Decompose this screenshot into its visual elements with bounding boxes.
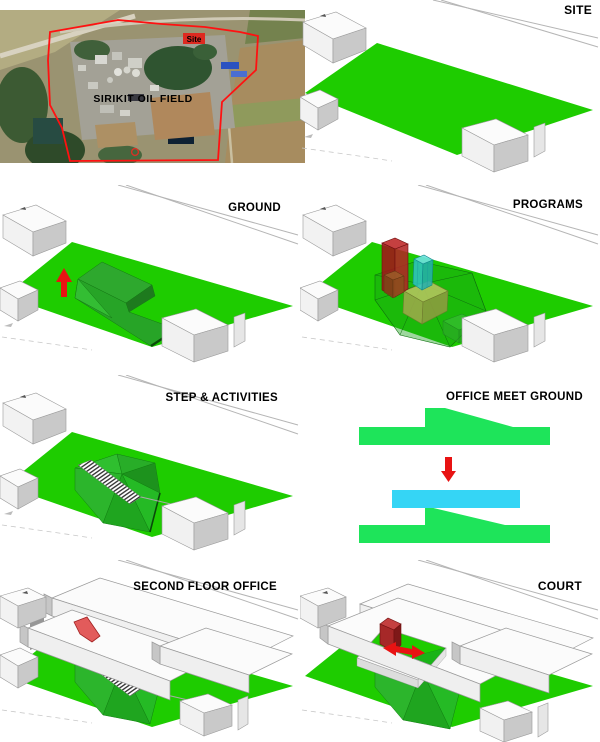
road-dashed-line xyxy=(2,525,92,538)
neighbor-building-nw xyxy=(303,12,366,63)
road-arrow-mark xyxy=(4,511,13,515)
diagram-sheet: Site SIRIKIT OIL FIELD xyxy=(0,0,600,742)
ground-section-top xyxy=(359,408,550,445)
site-marker-label: Site xyxy=(187,35,202,44)
freestanding-wall xyxy=(238,696,248,730)
road-dashed-line xyxy=(2,337,92,350)
panel-label-step-activities: STEP & ACTIVITIES xyxy=(166,392,278,404)
panel-court: COURT xyxy=(300,560,600,742)
panel-label-court: COURT xyxy=(538,579,582,593)
down-arrow-icon xyxy=(441,457,456,482)
panel-step-activities: STEP & ACTIVITIES xyxy=(0,375,300,560)
programs-scene xyxy=(300,185,600,375)
road-lines xyxy=(418,185,598,244)
panel-label-programs: PROGRAMS xyxy=(513,199,583,211)
road-lines xyxy=(118,375,298,434)
road-arrow-mark xyxy=(4,323,13,327)
panel-programs: PROGRAMS xyxy=(300,185,600,375)
south-building xyxy=(480,701,532,742)
neighbor-building-w xyxy=(300,281,338,321)
panel-site: SITE xyxy=(300,0,600,185)
road-dashed-line xyxy=(2,710,92,723)
neighbor-building-w xyxy=(0,469,38,509)
panel-label-site: SITE xyxy=(564,3,592,17)
freestanding-wall xyxy=(234,313,245,347)
panel-satellite: Site SIRIKIT OIL FIELD xyxy=(0,10,305,163)
ground-section-bottom xyxy=(359,506,550,543)
neighbor-building-nw xyxy=(3,393,66,444)
neighbor-building-nw xyxy=(3,205,66,256)
satellite-image: Site SIRIKIT OIL FIELD xyxy=(0,10,305,163)
freestanding-wall xyxy=(534,313,545,347)
panel-second-floor-office: SECOND FLOOR OFFICE xyxy=(0,560,300,742)
panel-office-meet-ground: OFFICE MEET GROUND xyxy=(300,375,600,560)
panel-label-second-floor-office: SECOND FLOOR OFFICE xyxy=(133,581,277,593)
road-dashed-line xyxy=(302,710,392,723)
site-plane xyxy=(305,43,593,155)
panel-label-office-meet-ground: OFFICE MEET GROUND xyxy=(446,391,583,403)
freestanding-wall xyxy=(538,703,548,737)
road-dashed-line xyxy=(302,337,392,350)
neighbor-building-nw xyxy=(303,205,366,256)
panel-ground: GROUND xyxy=(0,185,300,375)
site-marker: Site xyxy=(183,33,205,44)
neighbor-building-w xyxy=(0,281,38,321)
neighbor-building-w xyxy=(300,90,338,130)
freestanding-wall xyxy=(534,123,545,157)
panel-label-ground: GROUND xyxy=(228,202,281,214)
field-title: SIRIKIT OIL FIELD xyxy=(93,93,192,105)
road-arrow-mark xyxy=(304,134,313,138)
road-dashed-line xyxy=(302,148,392,161)
office-bar xyxy=(392,490,520,508)
site-scene xyxy=(300,0,600,185)
road-lines xyxy=(118,185,298,244)
program-box-cyan xyxy=(413,255,433,290)
freestanding-wall xyxy=(234,501,245,535)
